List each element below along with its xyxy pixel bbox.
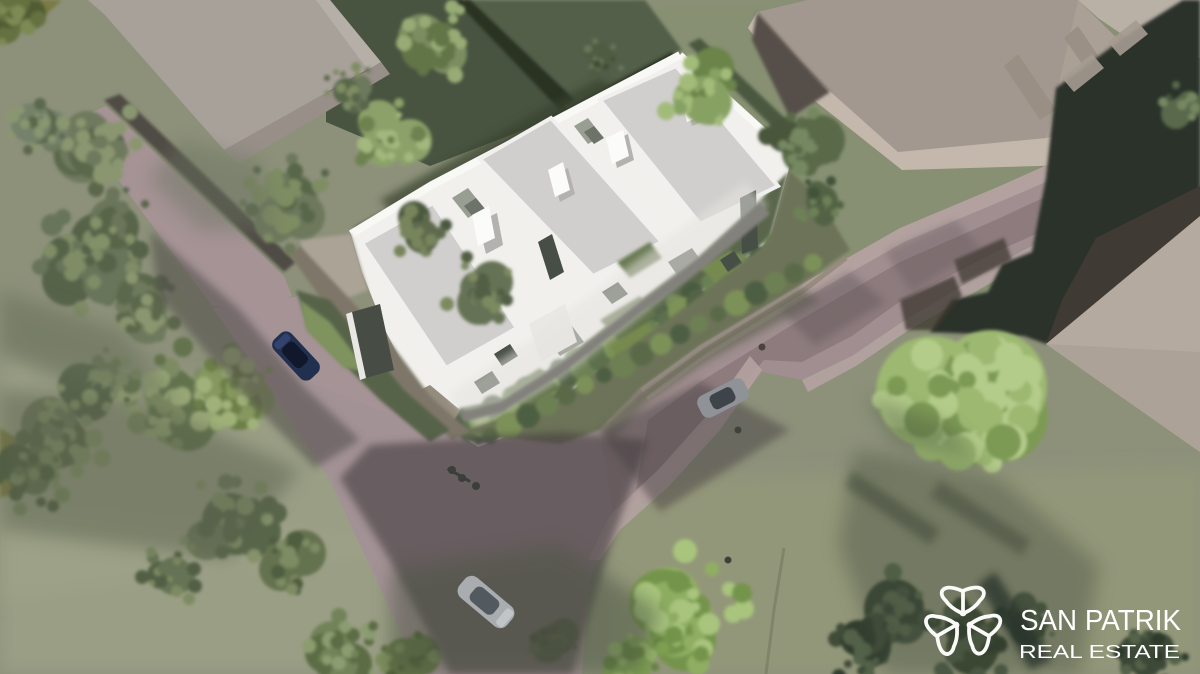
- svg-text:REAL ESTATE: REAL ESTATE: [1019, 641, 1180, 662]
- svg-text:SAN PATRIK: SAN PATRIK: [1020, 605, 1182, 637]
